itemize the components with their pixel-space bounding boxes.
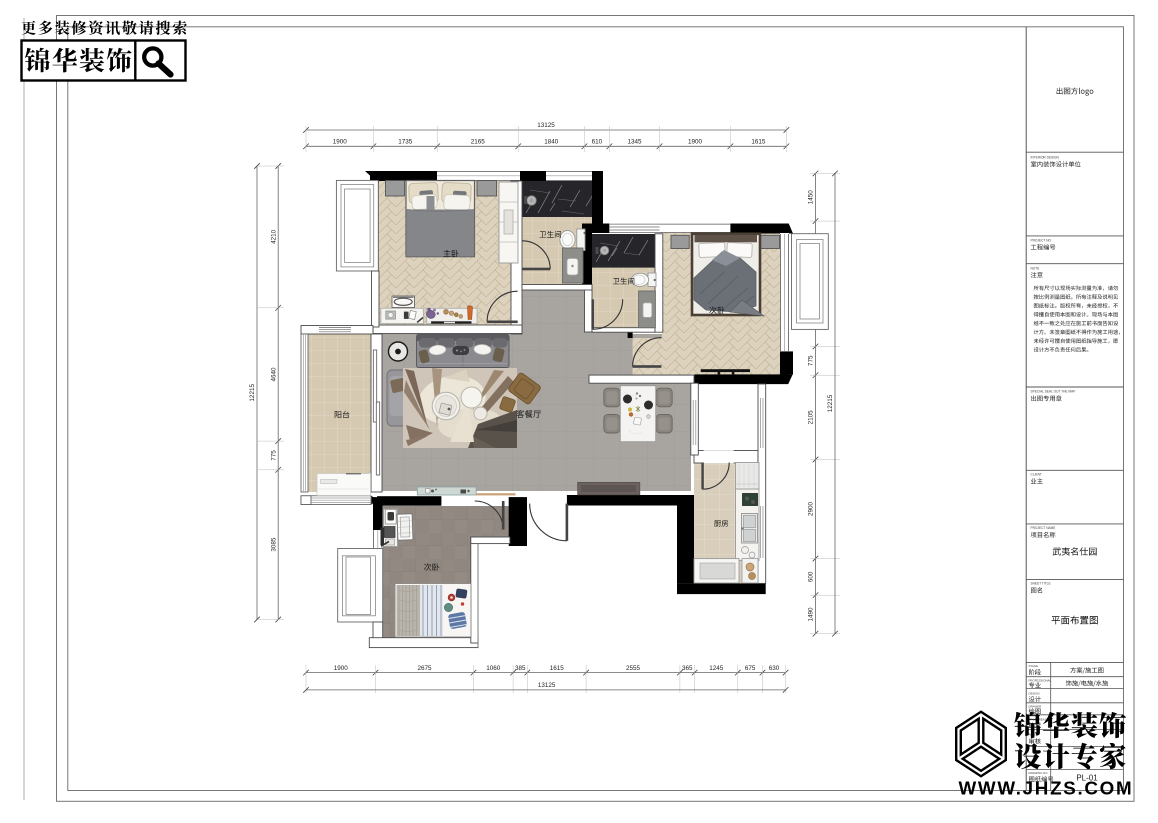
svg-text:2900: 2900 (808, 502, 815, 517)
svg-text:365: 365 (682, 665, 693, 672)
svg-text:INTERIOR DESIGN: INTERIOR DESIGN (1031, 156, 1060, 160)
svg-text:2165: 2165 (471, 139, 486, 146)
svg-text:385: 385 (515, 665, 526, 672)
svg-text:12215: 12215 (249, 384, 256, 402)
svg-text:DRAWER: DRAWER (1029, 705, 1042, 709)
svg-text:PROJECT NO: PROJECT NO (1031, 239, 1052, 243)
svg-text:STAGE: STAGE (1029, 664, 1039, 668)
svg-text:WWW.JHZS.COM: WWW.JHZS.COM (959, 778, 1134, 799)
svg-text:13125: 13125 (538, 682, 556, 689)
svg-text:1615: 1615 (550, 665, 565, 672)
svg-text:PROJECT NAME: PROJECT NAME (1031, 526, 1056, 530)
svg-text:PROFESSIONAL: PROFESSIONAL (1029, 678, 1052, 682)
svg-text:CLIENT: CLIENT (1031, 473, 1042, 477)
svg-text:DESIGN: DESIGN (1029, 692, 1040, 696)
svg-text:3085: 3085 (270, 537, 277, 552)
svg-text:675: 675 (745, 665, 756, 672)
svg-text:1900: 1900 (333, 139, 348, 146)
svg-text:1840: 1840 (544, 139, 559, 146)
svg-text:630: 630 (769, 665, 780, 672)
svg-text:1490: 1490 (808, 607, 815, 622)
svg-text:1900: 1900 (688, 139, 703, 146)
svg-text:NOTE: NOTE (1031, 266, 1040, 270)
svg-text:4640: 4640 (270, 367, 277, 382)
svg-text:SPECIAL SEAL OUT THE MAP: SPECIAL SEAL OUT THE MAP (1031, 390, 1076, 394)
svg-text:1615: 1615 (751, 139, 766, 146)
svg-text:SHEET TITLE: SHEET TITLE (1031, 582, 1051, 586)
svg-text:2555: 2555 (626, 665, 641, 672)
svg-text:600: 600 (808, 571, 815, 582)
svg-text:1245: 1245 (709, 665, 724, 672)
svg-text:12215: 12215 (827, 394, 834, 412)
svg-text:1900: 1900 (334, 665, 349, 672)
svg-text:775: 775 (808, 355, 815, 366)
svg-text:775: 775 (270, 450, 277, 461)
svg-text:4210: 4210 (270, 229, 277, 244)
svg-text:DRAWING NO: DRAWING NO (1029, 771, 1049, 775)
svg-text:13125: 13125 (537, 122, 555, 129)
svg-text:610: 610 (592, 139, 603, 146)
svg-text:1735: 1735 (398, 139, 413, 146)
svg-text:1345: 1345 (627, 139, 642, 146)
svg-text:2105: 2105 (808, 410, 815, 425)
svg-text:1450: 1450 (808, 190, 815, 205)
svg-text:1060: 1060 (486, 665, 501, 672)
svg-text:2675: 2675 (417, 665, 432, 672)
